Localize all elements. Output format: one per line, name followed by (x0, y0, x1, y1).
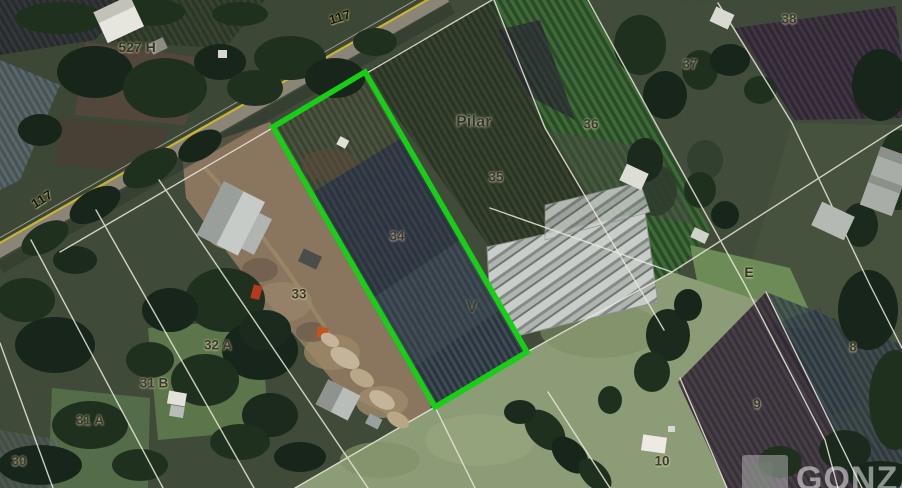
house-lot-10 (641, 434, 667, 453)
satellite-map[interactable]: 117527 H117Pilar3837363534V3332 A31 B31 … (0, 0, 902, 488)
satellite-imagery (0, 0, 902, 488)
